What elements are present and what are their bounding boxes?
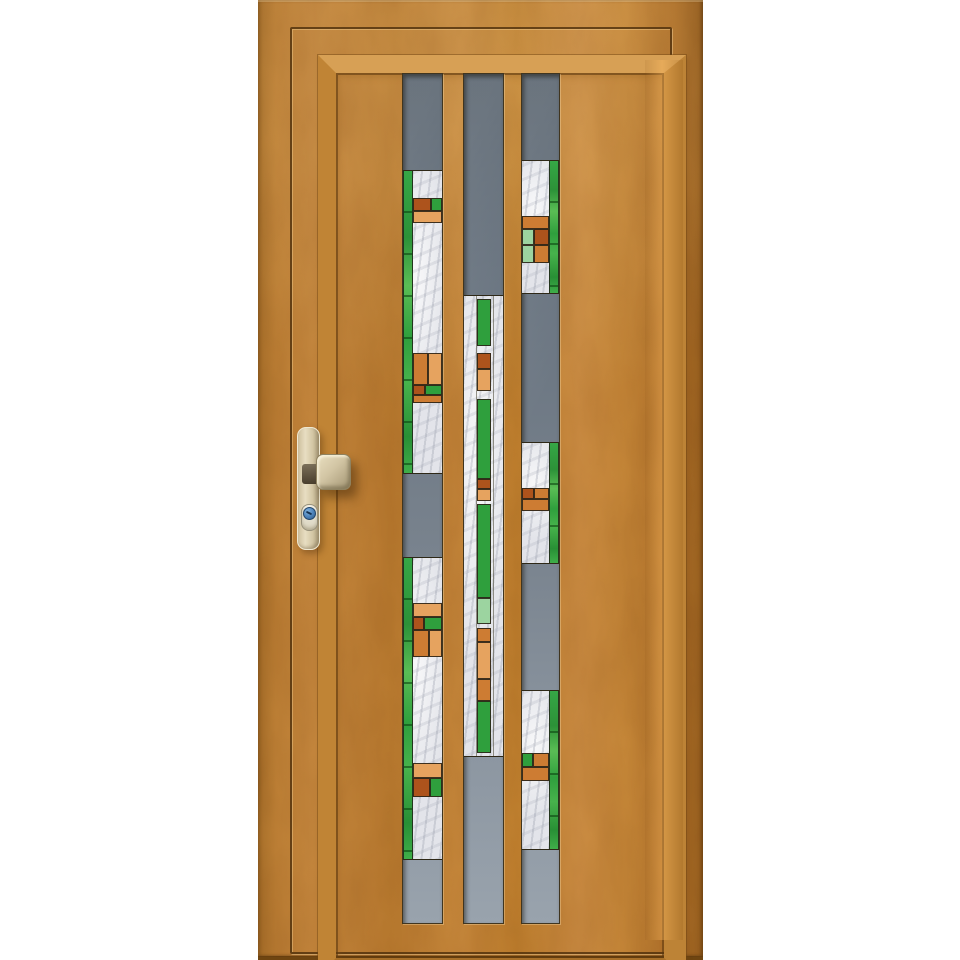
mosaic-tile-rust: [413, 617, 424, 630]
stained-glass-section: [522, 442, 559, 564]
mosaic-row: [522, 753, 549, 767]
mosaic-tile-lorange: [428, 353, 442, 385]
mosaic-row: [413, 385, 442, 395]
column-tile-ltgreen: [477, 598, 491, 624]
glass-strip-center: [463, 73, 504, 924]
mosaic-row: [413, 211, 442, 223]
stained-glass-section: [464, 295, 503, 757]
mosaic-tile-lorange: [413, 603, 442, 617]
mosaic-tile-rust: [534, 229, 549, 245]
mosaic-tile-green: [522, 753, 533, 767]
mosaic-tile-green: [430, 778, 442, 797]
green-border-stripe: [403, 558, 413, 859]
door-product-photo: [0, 0, 960, 960]
mosaic-row: [522, 767, 549, 781]
mosaic-row: [522, 499, 549, 511]
glass-strip-right: [521, 73, 560, 924]
mosaic-tile-green: [425, 385, 443, 395]
mosaic-tile-orange: [522, 216, 549, 229]
mosaic-row: [522, 216, 549, 229]
green-border-stripe: [549, 443, 559, 563]
lock-cylinder: [303, 507, 316, 520]
mosaic-tile-rust: [413, 385, 425, 395]
mosaic-tile-orange: [534, 245, 549, 263]
mosaic-tile-lorange: [429, 630, 442, 657]
mosaic-tile-orange: [413, 353, 428, 385]
green-border-stripe: [403, 171, 413, 473]
mosaic-tile-rust: [413, 198, 431, 211]
column-tile-green: [477, 399, 491, 479]
column-tile-green: [477, 299, 491, 346]
mosaic-row: [413, 617, 442, 630]
mosaic-tile-orange: [413, 395, 442, 403]
column-tile-orange: [477, 628, 491, 642]
stained-glass-section: [403, 170, 442, 474]
mosaic-row: [522, 229, 549, 245]
mosaic-tile-orange: [413, 630, 429, 657]
column-tile-lorange: [477, 489, 491, 501]
glass-strip-left: [402, 73, 443, 924]
green-border-stripe: [549, 691, 559, 849]
column-tile-lorange: [477, 642, 491, 679]
mosaic-row: [522, 245, 549, 263]
mosaic-tile-lorange: [413, 763, 442, 778]
mosaic-row: [522, 488, 549, 499]
mosaic-row: [413, 778, 442, 797]
mosaic-tile-orange: [522, 499, 549, 511]
column-tile-green: [477, 701, 491, 753]
mosaic-tile-green: [424, 617, 442, 630]
column-tile-rust: [477, 353, 491, 369]
mosaic-tile-lorange: [413, 211, 442, 223]
mosaic-tile-ltgreen: [522, 229, 534, 245]
stained-glass-section: [522, 690, 559, 850]
column-tile-orange: [477, 679, 491, 701]
mosaic-tile-green: [431, 198, 443, 211]
mosaic-tile-rust: [413, 778, 430, 797]
mosaic-row: [413, 603, 442, 617]
green-border-stripe: [549, 161, 559, 293]
mosaic-row: [413, 395, 442, 403]
column-tile-lorange: [477, 369, 491, 391]
handle-backplate: [297, 427, 320, 550]
mosaic-tile-rust: [522, 488, 534, 499]
mosaic-tile-orange: [522, 767, 549, 781]
handle-knob: [316, 454, 351, 490]
mosaic-tile-orange: [533, 753, 549, 767]
stained-glass-section: [403, 557, 442, 860]
mosaic-row: [413, 198, 442, 211]
mosaic-tile-orange: [534, 488, 549, 499]
stained-glass-section: [522, 160, 559, 294]
mosaic-row: [413, 630, 442, 657]
mosaic-tile-ltgreen: [522, 245, 534, 263]
mosaic-row: [413, 763, 442, 778]
mosaic-row: [413, 353, 442, 385]
column-tile-rust: [477, 479, 491, 489]
column-tile-green: [477, 504, 491, 598]
